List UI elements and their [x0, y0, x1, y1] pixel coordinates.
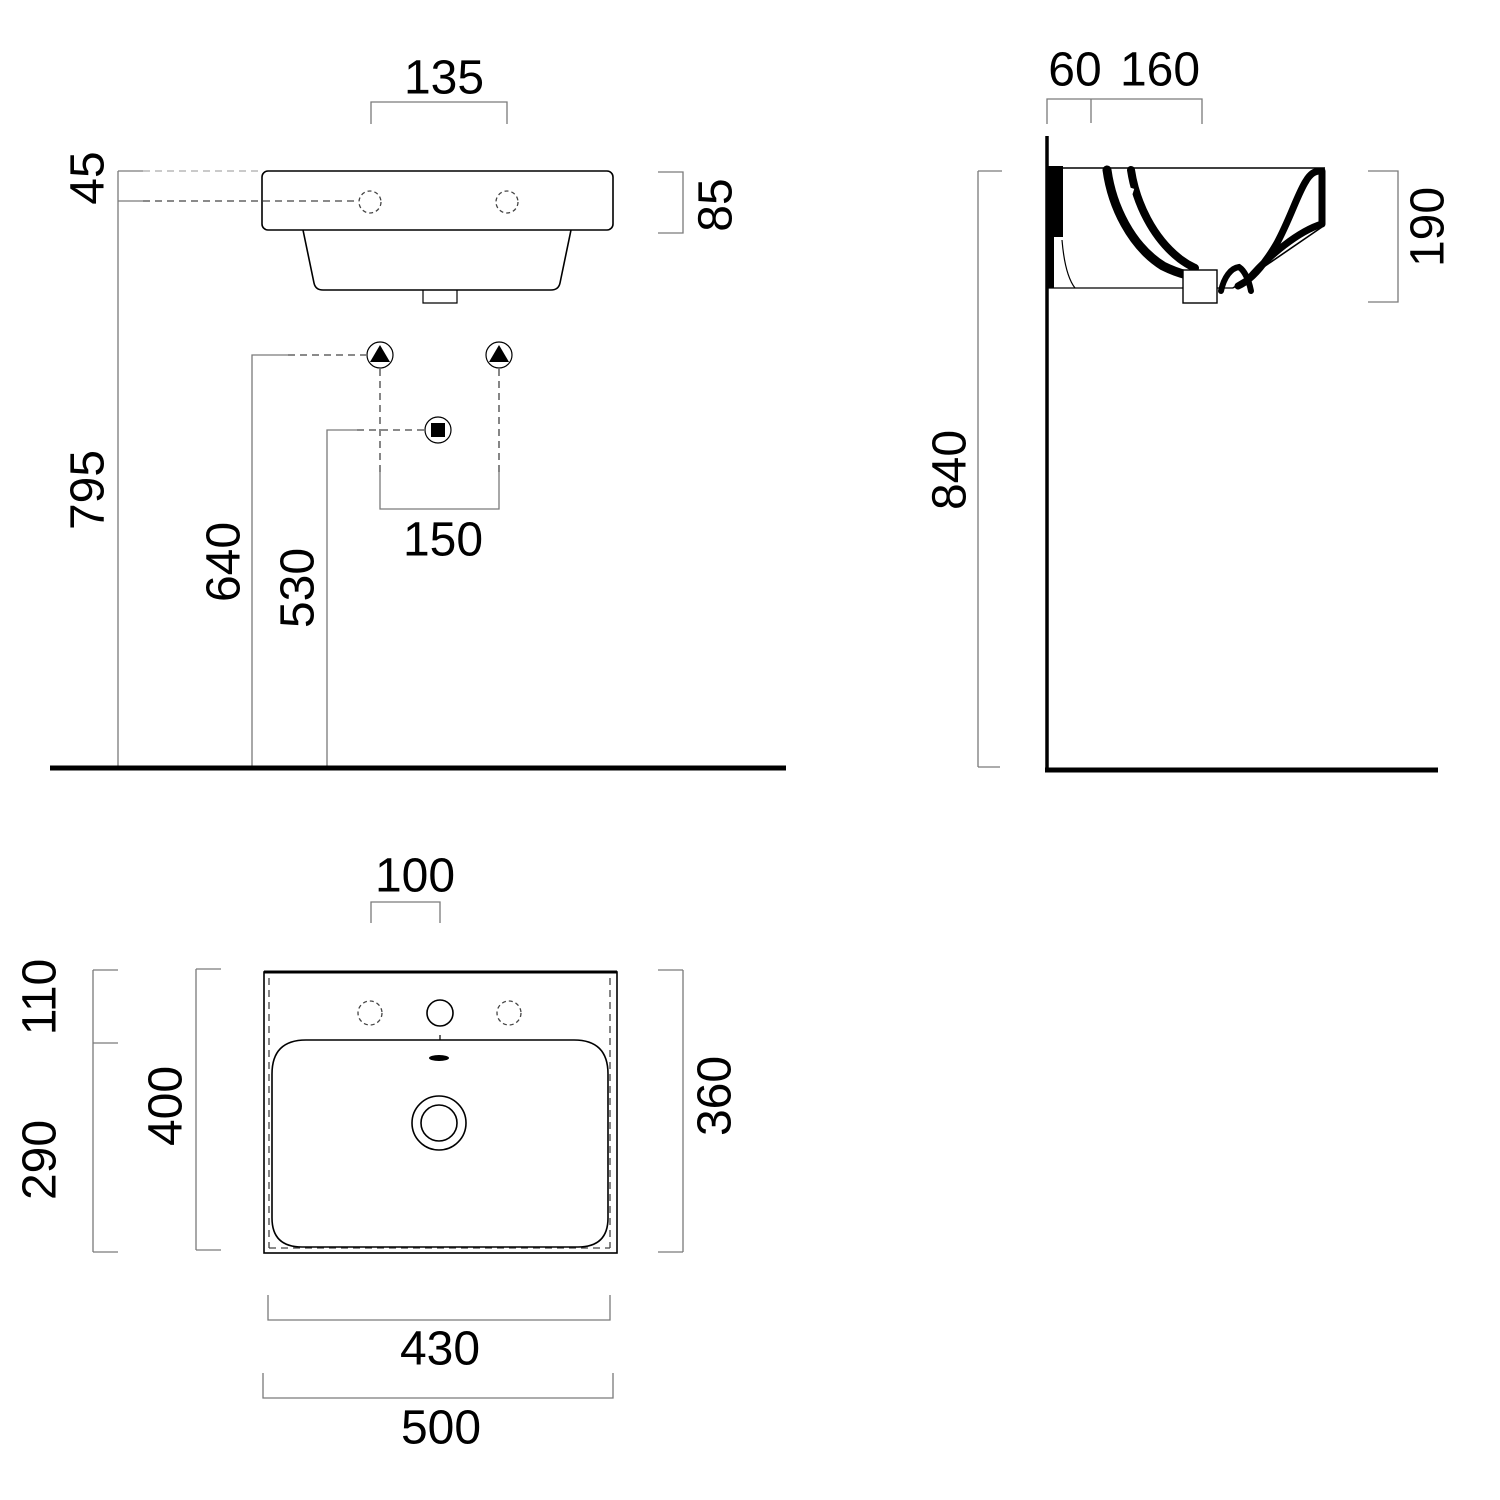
- drain-stub-outline: [423, 290, 457, 303]
- tap-hole-right-icon: [496, 191, 518, 213]
- dim-label-430: 430: [400, 1323, 480, 1376]
- side-view: 60 160 840 190: [924, 44, 1455, 771]
- dim-label-85: 85: [690, 178, 743, 231]
- fixing-point-right-icon: [486, 342, 512, 368]
- dim-label-150: 150: [403, 514, 483, 567]
- washbasin-dimension-drawing: 135 45 795 85 640 530: [0, 0, 1500, 1500]
- plan-outer-outline: [264, 972, 617, 1253]
- dim-label-290: 290: [14, 1120, 67, 1200]
- dim-bracket-100: [371, 902, 440, 923]
- plan-view: 100 110 290 400 360 430 500: [14, 850, 742, 1455]
- dim-label-45: 45: [62, 151, 115, 204]
- dim-label-640: 640: [198, 522, 251, 602]
- dim-label-530: 530: [272, 548, 325, 628]
- dim-label-110: 110: [14, 959, 67, 1036]
- dim-bracket-430: [268, 1295, 610, 1320]
- dim-label-160: 160: [1120, 44, 1200, 97]
- section-drain-box: [1183, 270, 1217, 303]
- dim-label-135: 135: [404, 52, 484, 105]
- dim-bracket-135: [371, 102, 507, 124]
- section-overflow-gap: [1119, 186, 1134, 205]
- plan-drain-outer: [412, 1096, 466, 1150]
- section-back-pedestal-line: [1062, 240, 1075, 288]
- section-back-fixing-cut: [1048, 166, 1063, 237]
- bowl-outline: [303, 230, 571, 290]
- dim-label-190: 190: [1402, 187, 1455, 267]
- plan-tap-hole-right-icon: [497, 1001, 521, 1025]
- dim-label-795: 795: [62, 450, 115, 530]
- plan-drain-inner: [421, 1105, 457, 1141]
- dim-label-840: 840: [924, 430, 977, 510]
- front-view: 135 45 795 85 640 530: [50, 52, 786, 769]
- drain-point-icon: [425, 417, 451, 443]
- technical-drawing-sheet: 135 45 795 85 640 530: [0, 0, 1500, 1500]
- dim-label-100: 100: [375, 850, 455, 903]
- dim-label-400: 400: [140, 1066, 193, 1146]
- dim-bracket-500: [263, 1373, 613, 1398]
- dim-bracket-150: [380, 472, 499, 509]
- plan-tap-hole-left-icon: [358, 1001, 382, 1025]
- tap-hole-left-icon: [359, 191, 381, 213]
- dim-bracket-60-160: [1047, 99, 1202, 124]
- dim-label-500: 500: [401, 1402, 481, 1455]
- plan-bowl-outline: [272, 1040, 608, 1247]
- plan-tap-hole-center-icon: [427, 1000, 453, 1026]
- fixing-point-left-icon: [367, 342, 393, 368]
- overflow-slot-icon: [429, 1055, 449, 1061]
- section-front-apron-cut: [1238, 171, 1322, 286]
- section-back-tail-cut: [1048, 232, 1054, 288]
- dim-label-60: 60: [1048, 44, 1101, 97]
- dim-bracket-85: [658, 172, 683, 233]
- dim-line-530: [327, 430, 357, 768]
- dim-bracket-190: [1368, 171, 1398, 302]
- dim-label-360: 360: [689, 1056, 742, 1136]
